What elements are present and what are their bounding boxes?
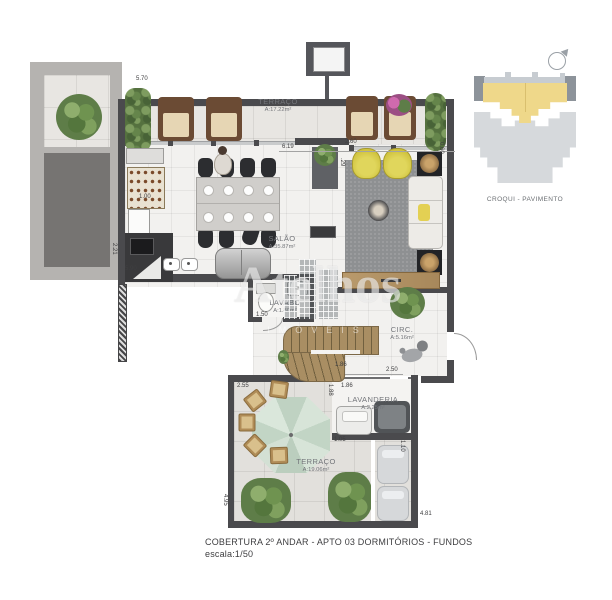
- croqui-tab: [560, 73, 565, 78]
- wall: [248, 274, 253, 322]
- dining-chair: [219, 228, 234, 248]
- tv-bench: [310, 226, 336, 238]
- room-name: LAVABO: [262, 298, 308, 307]
- dining-chair: [198, 228, 213, 248]
- coffee-table: [368, 200, 389, 221]
- caption-line1: COBERTURA 2º ANDAR - APTO 03 DORMITÓRIOS…: [205, 537, 472, 547]
- wall: [411, 375, 418, 528]
- room-label-terraco-bottom: TERRAÇO A:19.06m²: [286, 457, 346, 473]
- plant: [278, 350, 289, 364]
- terrace-divider: [371, 440, 375, 521]
- side-table: [417, 151, 442, 176]
- room-area: A:1.80m²: [262, 308, 308, 314]
- flower-pot: [386, 94, 412, 116]
- room-label-circ: CIRC. A:5.16m²: [380, 325, 424, 341]
- dimension-label: 1.00: [139, 194, 151, 200]
- wall-cabinet: [128, 209, 150, 235]
- dimension-label: 2.21: [111, 243, 117, 255]
- island-divider: [241, 250, 242, 275]
- room-label-terraco-top: TERRAÇO A:17.22m²: [245, 97, 311, 113]
- dimension-label: 0.60: [438, 142, 444, 154]
- bar-stool-dot: [187, 262, 190, 265]
- dimension-label: 2.60: [345, 139, 357, 145]
- plant: [314, 144, 336, 166]
- croqui-label: CROQUI - PAVIMENTO: [477, 196, 573, 203]
- entry-door-arc: [454, 333, 477, 360]
- room-label-lavabo: LAVABO A:1.80m²: [262, 298, 308, 314]
- mullion: [254, 140, 259, 146]
- room-label-lavanderia: LAVANDERIA A:2.25m²: [338, 395, 408, 411]
- wall: [283, 317, 314, 322]
- kitchen-sink: [130, 238, 154, 255]
- dimension-label: 1.88: [327, 384, 333, 396]
- dining-chair: [261, 158, 276, 178]
- sun-lounger: [377, 486, 409, 521]
- kitchen-island: [215, 248, 271, 279]
- croqui-center-line: [525, 83, 526, 112]
- dimension-label: 1.86: [335, 362, 347, 368]
- dimension-label: 1.05: [334, 437, 346, 443]
- washbasin: [287, 281, 308, 296]
- dimension-label: .29: [339, 158, 345, 166]
- dimension-label: 6.19: [282, 144, 294, 150]
- dining-chair: [198, 158, 213, 178]
- wall: [447, 360, 454, 376]
- plant: [390, 287, 425, 319]
- dining-chair: [240, 158, 255, 178]
- elevator-link: [325, 76, 329, 99]
- dining-table: [196, 177, 280, 231]
- armchair-yellow: [383, 148, 412, 179]
- dim-line: [345, 374, 403, 375]
- shrub: [241, 478, 291, 523]
- outdoor-chair: [269, 380, 289, 399]
- room-name: SALÃO: [252, 234, 312, 243]
- dimension-label: 5.90: [125, 266, 137, 272]
- croqui: CROQUI - PAVIMENTO: [472, 50, 580, 210]
- dimension-label: 4.81: [420, 511, 432, 517]
- bar-stool-dot: [169, 262, 172, 265]
- hedge: [125, 88, 151, 152]
- wall: [118, 99, 125, 285]
- room-name: TERRAÇO: [286, 457, 346, 466]
- sofa: [408, 176, 443, 249]
- elevator-cab: [313, 47, 345, 72]
- room-area: A:5.16m²: [380, 335, 424, 341]
- croqui-tab: [505, 72, 511, 78]
- dim-line: [279, 151, 455, 152]
- plant: [56, 94, 102, 140]
- dimension-label: 2.55: [237, 383, 249, 389]
- hatched-wall: [118, 284, 127, 362]
- table-runner: [197, 203, 279, 204]
- room-area: A:2.25m²: [338, 405, 408, 411]
- wall: [421, 376, 454, 383]
- wall: [309, 274, 314, 322]
- staircase: [283, 326, 377, 380]
- kitchen-appliance: [126, 148, 164, 164]
- outdoor-chair: [239, 414, 256, 432]
- dimension-label: 2.50: [386, 367, 398, 373]
- armchair-yellow: [352, 148, 381, 179]
- umbrella-pole: [289, 433, 293, 437]
- room-area: A:19.06m²: [286, 467, 346, 473]
- shrub: [328, 472, 372, 522]
- north-arrow-icon: [548, 52, 566, 70]
- person-figure: [212, 146, 232, 176]
- dimension-label: 1.50: [256, 312, 268, 318]
- dimension-label: 4.95: [222, 494, 228, 506]
- sun-lounger: [158, 97, 194, 141]
- wall: [447, 99, 454, 332]
- sofa-pillow: [418, 204, 430, 221]
- croqui-tab: [532, 72, 538, 78]
- caption-line2: escala:1/50: [205, 549, 253, 559]
- floor-plan-sheet: TERRAÇO A:17.22m² SALÃO A:35.87m² LAVABO…: [0, 0, 612, 600]
- sun-lounger: [206, 97, 242, 141]
- room-label-salao: SALÃO A:35.87m²: [252, 234, 312, 250]
- dimension-label: 5.70: [136, 76, 148, 82]
- dimension-label: 1.10: [399, 440, 405, 452]
- wall: [228, 375, 234, 528]
- sun-lounger: [346, 96, 378, 140]
- bar-shelf: [127, 167, 165, 209]
- partition-line: [408, 377, 411, 379]
- room-area: A:35.87m²: [252, 244, 312, 250]
- room-name: CIRC.: [380, 325, 424, 334]
- room-name: LAVANDERIA: [338, 395, 408, 404]
- room-area: A:17.22m²: [245, 107, 311, 113]
- gravel-bed: [44, 153, 110, 267]
- dimension-label: 1.86: [341, 383, 353, 389]
- buffet-sideboard: [342, 272, 440, 289]
- room-name: TERRAÇO: [245, 97, 311, 106]
